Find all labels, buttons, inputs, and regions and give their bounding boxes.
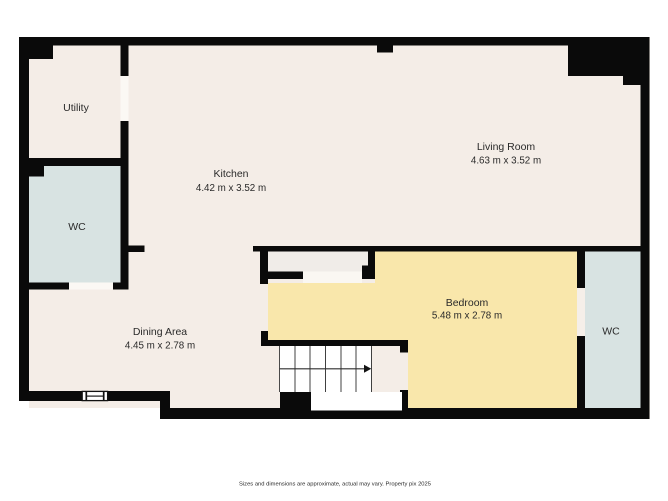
svg-text:Utility: Utility — [63, 102, 89, 114]
svg-text:Living Room: Living Room — [477, 141, 536, 153]
svg-text:Kitchen: Kitchen — [213, 168, 248, 180]
svg-text:4.45 m x 2.78 m: 4.45 m x 2.78 m — [125, 341, 195, 352]
svg-text:4.63 m x 3.52 m: 4.63 m x 3.52 m — [471, 156, 541, 167]
svg-text:WC: WC — [602, 326, 620, 338]
svg-text:Bedroom: Bedroom — [446, 297, 489, 309]
svg-text:Sizes and dimensions are appro: Sizes and dimensions are approximate, ac… — [239, 482, 431, 488]
svg-text:5.48 m x 2.78 m: 5.48 m x 2.78 m — [432, 311, 502, 322]
svg-text:Dining Area: Dining Area — [133, 326, 187, 338]
svg-text:4.42 m x 3.52 m: 4.42 m x 3.52 m — [196, 183, 266, 194]
svg-text:WC: WC — [68, 221, 86, 233]
